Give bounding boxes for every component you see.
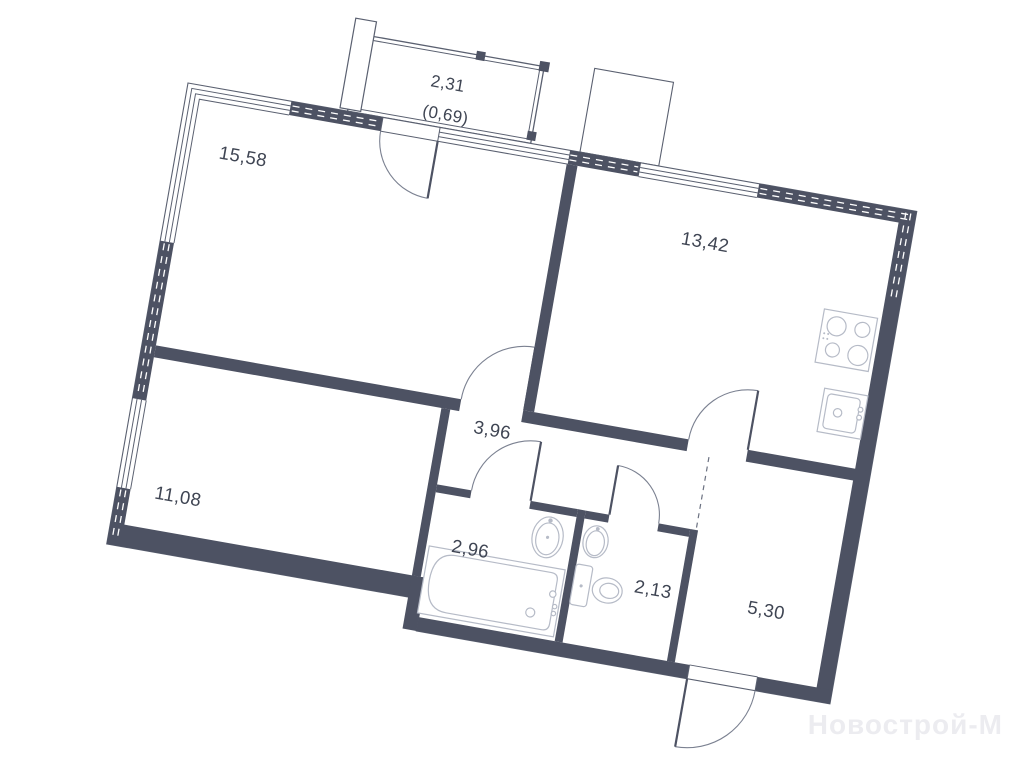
stove-icon: [815, 309, 878, 372]
kitchen-ledge-outline: [580, 68, 674, 166]
floor-plan-page: 15,58 13,42 3,96 11,08 2,96 2,13 5,30 2,…: [0, 0, 1012, 768]
entrance-door-arc: [675, 679, 755, 759]
watermark-text: Новострой-М: [808, 709, 1003, 740]
floor-plan: 15,58 13,42 3,96 11,08 2,96 2,13 5,30 2,…: [0, 0, 1012, 768]
kitchen-sink-icon: [817, 388, 868, 439]
entrance-door-leaf: [675, 679, 687, 747]
